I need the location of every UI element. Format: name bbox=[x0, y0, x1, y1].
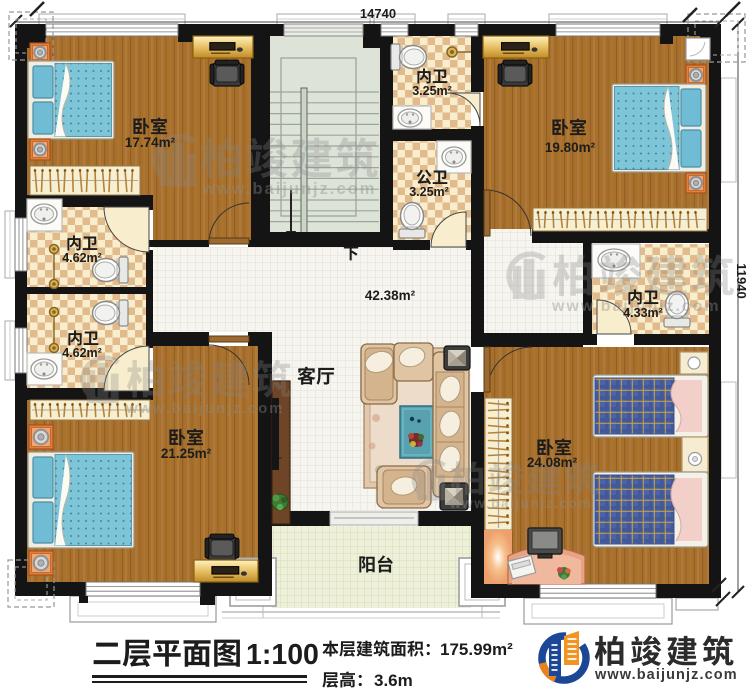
svg-text:3.6m: 3.6m bbox=[374, 671, 413, 690]
svg-text:4.33m²: 4.33m² bbox=[623, 306, 663, 320]
svg-text:www.baijunjz.com: www.baijunjz.com bbox=[449, 496, 592, 511]
svg-text:www.baijunjz.com: www.baijunjz.com bbox=[594, 667, 738, 683]
svg-text:3.25m²: 3.25m² bbox=[412, 84, 452, 98]
svg-text:42.38m²: 42.38m² bbox=[365, 288, 416, 303]
svg-text:14740: 14740 bbox=[360, 6, 396, 21]
svg-text:175.99m²: 175.99m² bbox=[440, 640, 513, 659]
svg-text:17.74m²: 17.74m² bbox=[125, 135, 176, 150]
svg-text:11940: 11940 bbox=[734, 263, 749, 298]
svg-text:3.25m²: 3.25m² bbox=[409, 185, 449, 199]
svg-text:21.25m²: 21.25m² bbox=[161, 446, 212, 461]
svg-text:4.62m²: 4.62m² bbox=[62, 251, 102, 265]
svg-text:24.08m²: 24.08m² bbox=[527, 455, 578, 470]
svg-text:19.80m²: 19.80m² bbox=[545, 140, 596, 155]
svg-text:1:100: 1:100 bbox=[246, 639, 319, 671]
svg-text:4.62m²: 4.62m² bbox=[62, 346, 102, 360]
svg-text:www.baijunjz.com: www.baijunjz.com bbox=[201, 180, 376, 198]
svg-text:www.baijunjz.com: www.baijunjz.com bbox=[125, 400, 284, 417]
